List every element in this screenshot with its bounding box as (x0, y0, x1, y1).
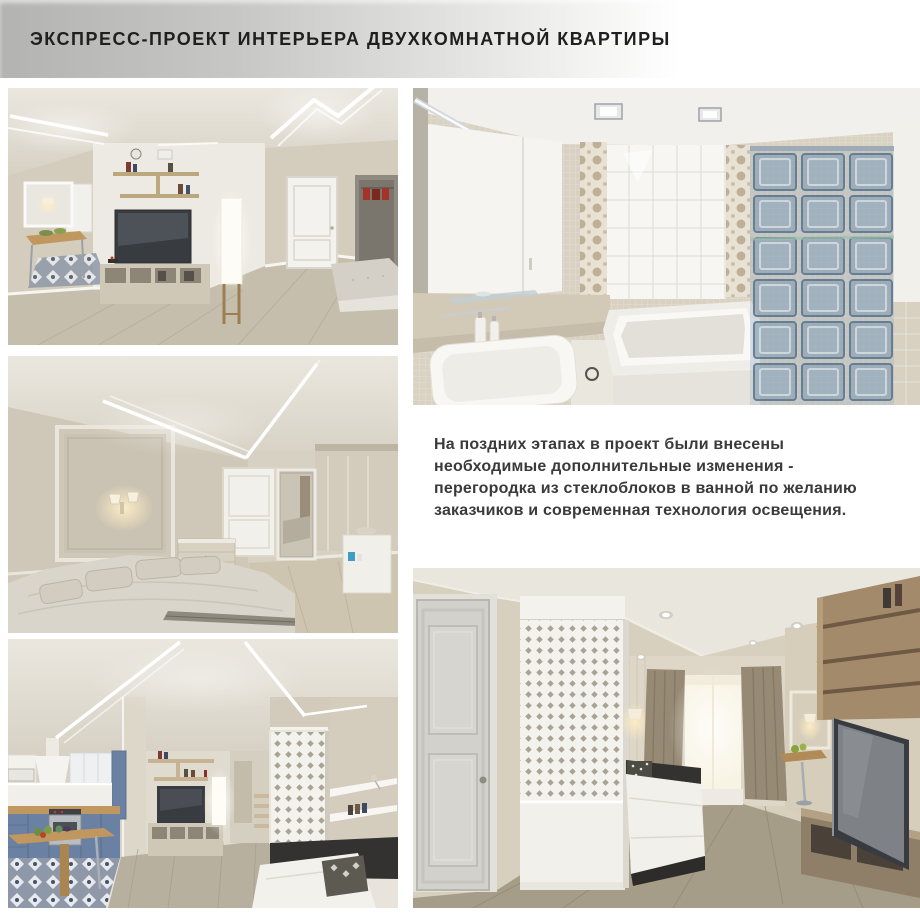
note-line: необходимые дополнительные изменения - (434, 456, 912, 478)
living-room-render (8, 88, 398, 345)
bedroom-render (8, 356, 398, 633)
bathroom-render (413, 88, 920, 405)
living-sofa-render (413, 568, 920, 908)
note-line: перегородка из стеклоблоков в ванной по … (434, 478, 912, 500)
note-line: заказчиков и современная технология осве… (434, 500, 912, 522)
page-title: ЭКСПРЕСС-ПРОЕКТ ИНТЕРЬЕРА ДВУХКОМНАТНОЙ … (30, 0, 671, 78)
project-note: На поздних этапах в проект были внесены … (434, 434, 912, 522)
bathtub (603, 301, 760, 405)
photo-kitchen-living (8, 639, 398, 908)
photo-living-sofa (413, 568, 920, 908)
vintage-door (413, 594, 497, 892)
header-band: ЭКСПРЕСС-ПРОЕКТ ИНТЕРЬЕРА ДВУХКОМНАТНОЙ … (0, 0, 920, 78)
glass-block-partition (750, 146, 894, 405)
note-line: На поздних этапах в проект были внесены (434, 434, 912, 456)
kitchen (8, 738, 126, 908)
kitchen-living-render (8, 639, 398, 908)
portfolio-page: ЭКСПРЕСС-ПРОЕКТ ИНТЕРЬЕРА ДВУХКОМНАТНОЙ … (0, 0, 920, 914)
lattice-partition (270, 727, 329, 843)
sofa (626, 760, 705, 886)
vanity-table (343, 527, 391, 593)
wall-tiles (580, 142, 750, 300)
photo-living-room-tv (8, 88, 398, 345)
photo-bathroom (413, 88, 920, 405)
photo-bedroom (8, 356, 398, 633)
lattice-partition (520, 596, 629, 890)
